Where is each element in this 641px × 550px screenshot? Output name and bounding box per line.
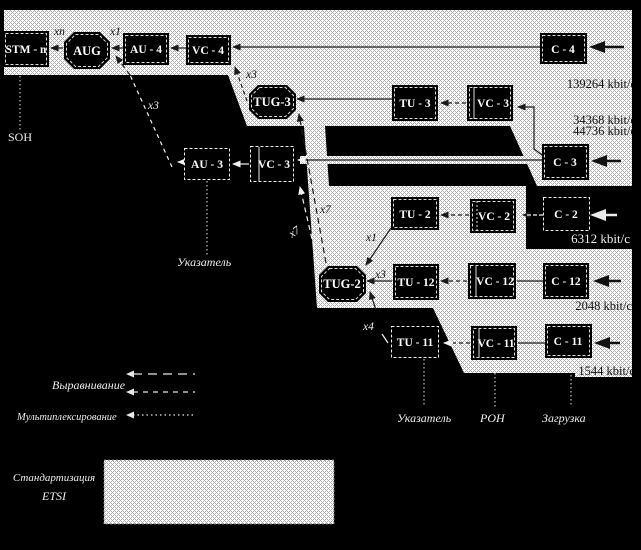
svg-text:1544 kbit/c: 1544 kbit/c — [578, 364, 635, 378]
svg-text:C - 11: C - 11 — [554, 336, 583, 348]
svg-text:Указатель: Указатель — [397, 411, 452, 425]
svg-text:139264 kbit/c: 139264 kbit/c — [567, 77, 637, 91]
svg-text:C - 2: C - 2 — [554, 209, 578, 221]
svg-text:x1: x1 — [365, 232, 377, 244]
svg-text:x7: x7 — [319, 204, 332, 216]
svg-text:TUG-3: TUG-3 — [253, 95, 291, 109]
svg-text:х3: х3 — [147, 100, 159, 112]
svg-text:AU - 4: AU - 4 — [130, 44, 162, 56]
svg-text:TUG-2: TUG-2 — [323, 277, 361, 291]
svg-text:STM - n: STM - n — [6, 44, 48, 56]
svg-text:Выравнивание: Выравнивание — [52, 378, 126, 392]
svg-text:AUG: AUG — [73, 44, 101, 58]
svg-text:Мультиплексирование: Мультиплексирование — [16, 412, 117, 423]
svg-text:C - 3: C - 3 — [553, 157, 577, 169]
svg-text:VC - 3: VC - 3 — [258, 159, 290, 171]
svg-text:ETSI: ETSI — [41, 489, 67, 503]
svg-text:TU - 11: TU - 11 — [397, 337, 434, 349]
svg-text:Стандартизация: Стандартизация — [13, 472, 95, 484]
svg-text:VC - 4: VC - 4 — [192, 45, 224, 57]
svg-text:Загрузка: Загрузка — [542, 411, 586, 425]
svg-text:AU - 3: AU - 3 — [191, 159, 223, 171]
svg-text:VC - 2: VC - 2 — [478, 211, 510, 223]
svg-text:TU - 12: TU - 12 — [397, 277, 434, 289]
svg-text:TU - 2: TU - 2 — [399, 209, 431, 221]
svg-text:Указатель: Указатель — [177, 255, 232, 269]
svg-text:x3: x3 — [245, 69, 257, 81]
svg-text:6312 kbit/c: 6312 kbit/c — [571, 231, 630, 246]
svg-text:SOH: SOH — [8, 130, 32, 144]
svg-text:xn: xn — [53, 26, 65, 38]
svg-text:C - 12: C - 12 — [551, 276, 581, 288]
svg-text:VC - 12: VC - 12 — [476, 276, 514, 288]
svg-text:TU - 3: TU - 3 — [399, 98, 431, 110]
svg-text:2048 kbit/c: 2048 kbit/c — [575, 299, 632, 313]
svg-text:x3: x3 — [374, 269, 386, 281]
svg-text:VC - 11: VC - 11 — [477, 338, 514, 350]
svg-text:C - 4: C - 4 — [551, 44, 575, 56]
svg-text:x1: x1 — [109, 26, 121, 38]
svg-text:x4: x4 — [362, 321, 374, 333]
svg-text:POH: POH — [479, 411, 506, 425]
svg-text:44736 kbit/c: 44736 kbit/c — [573, 124, 636, 138]
svg-text:VC - 3: VC - 3 — [477, 98, 509, 110]
